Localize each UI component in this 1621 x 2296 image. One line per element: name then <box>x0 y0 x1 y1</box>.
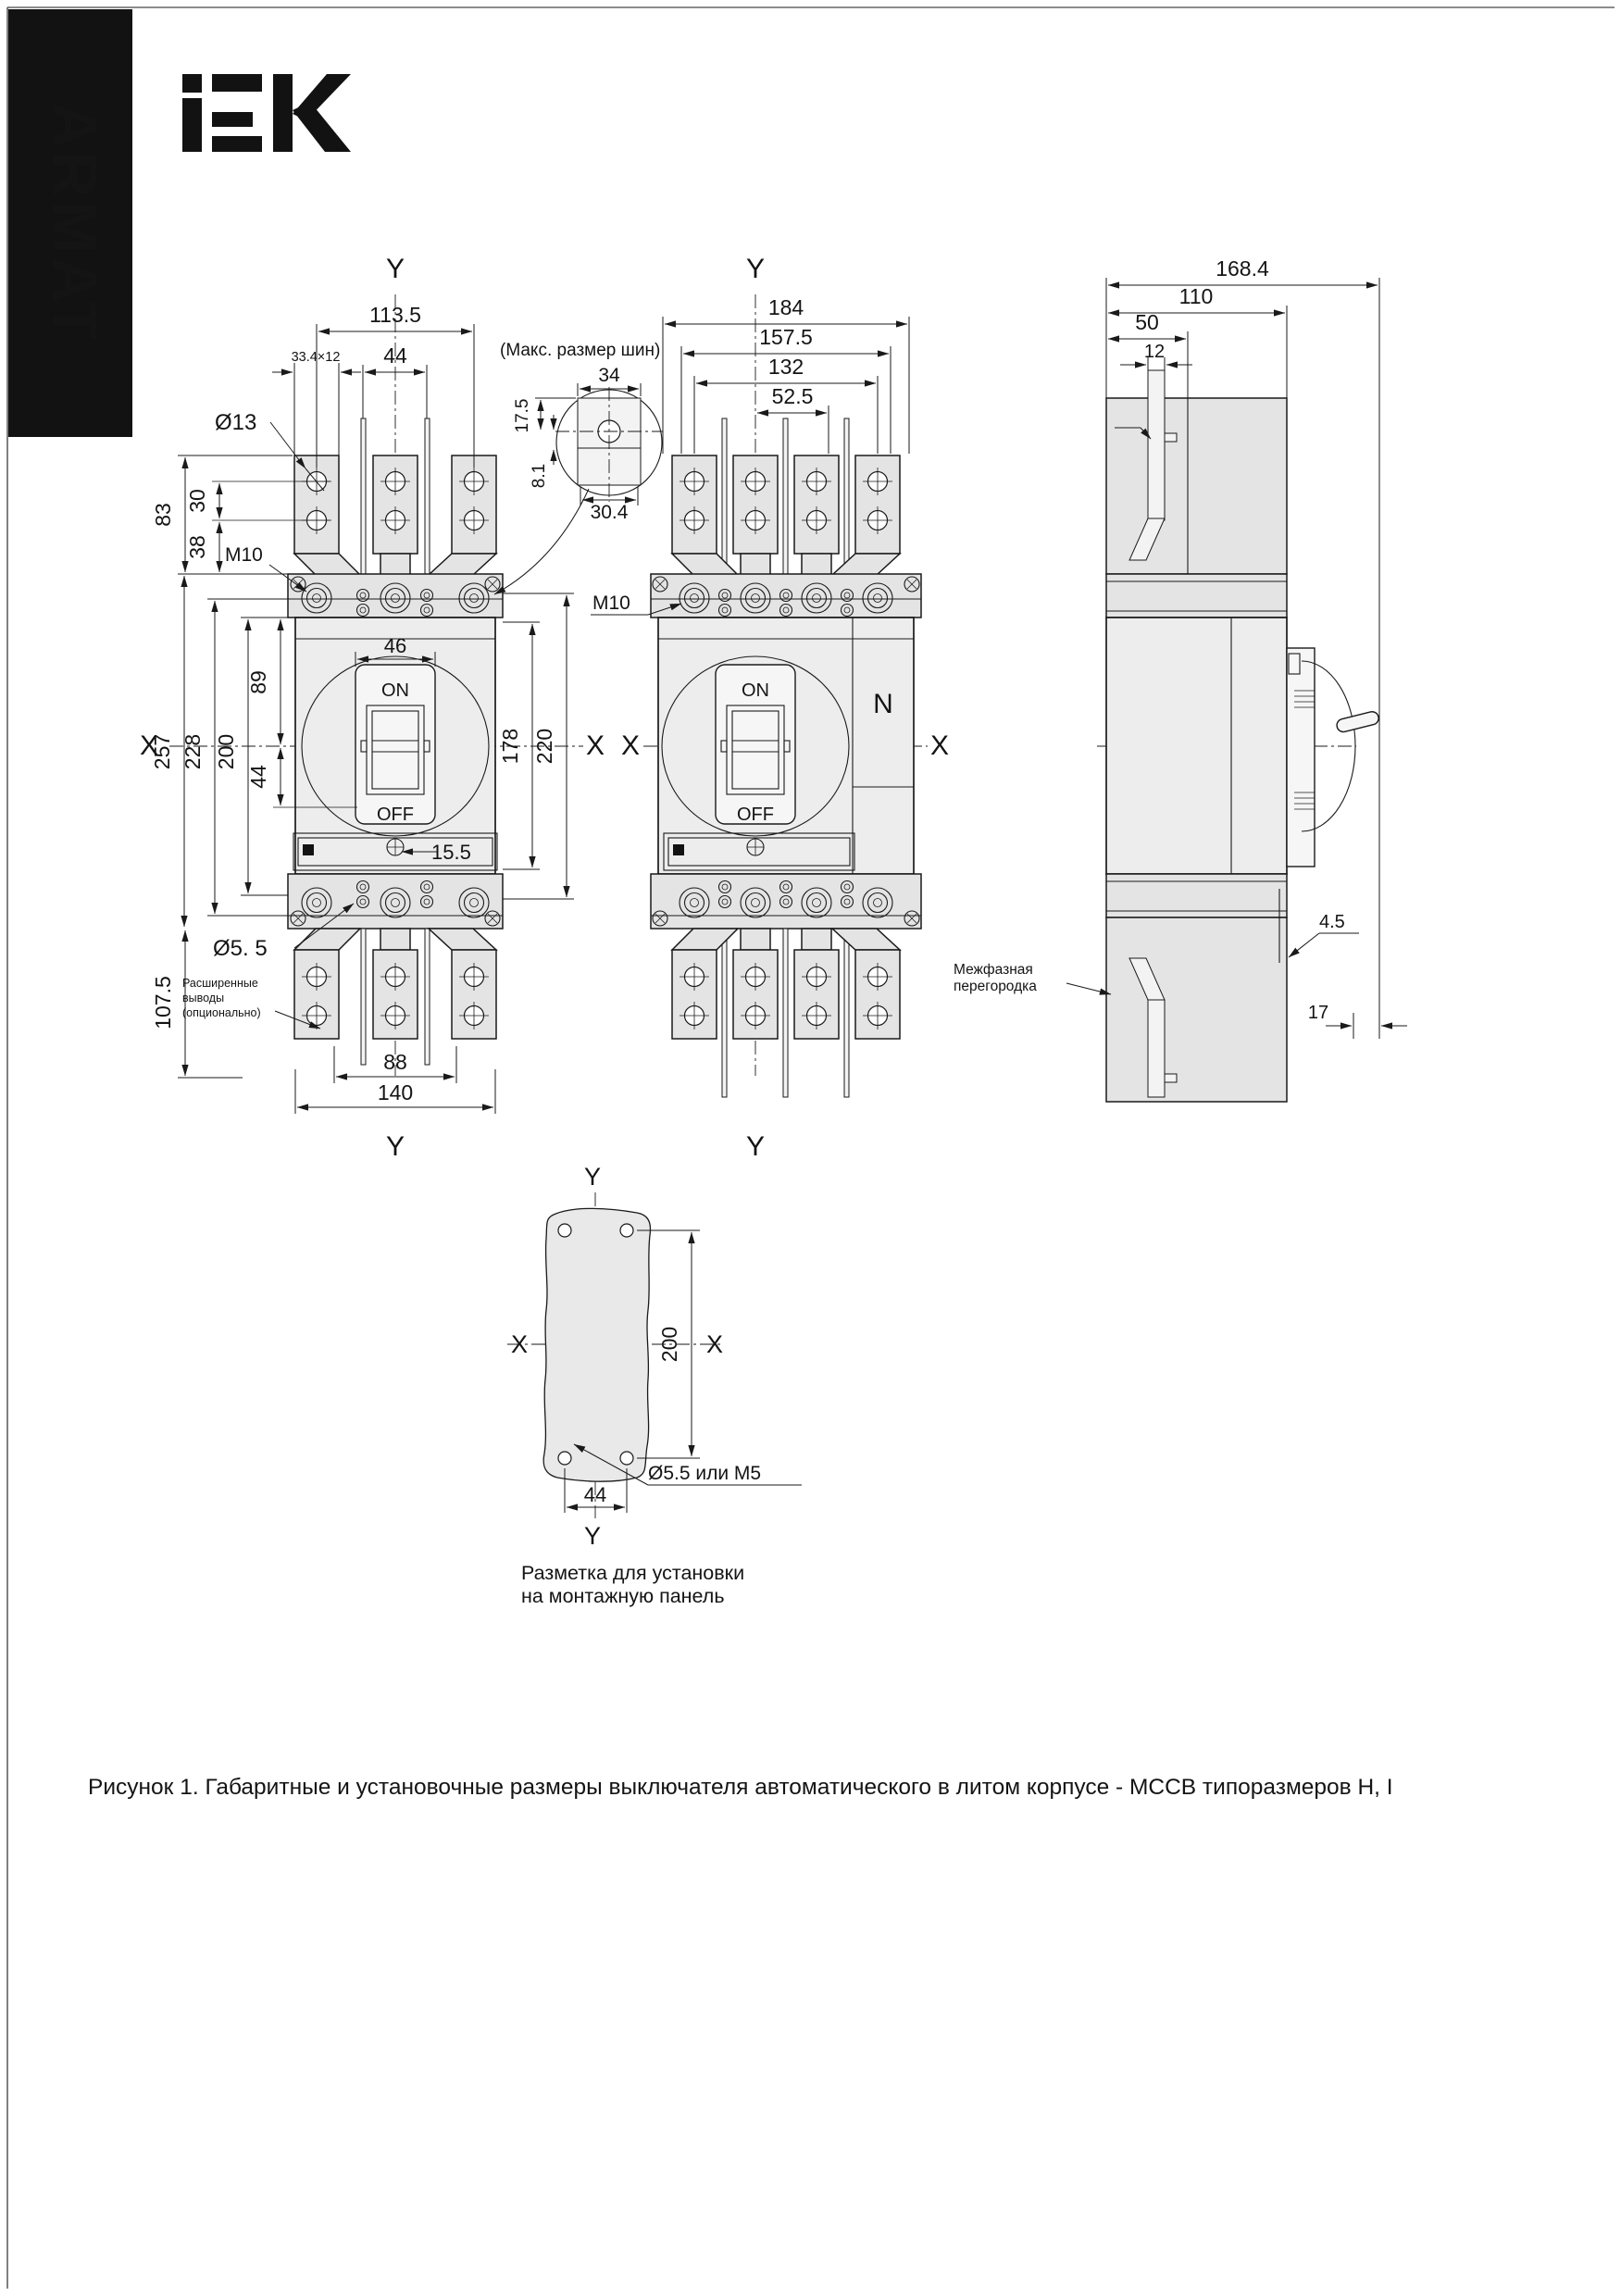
v1-dim-hole-span: 30 <box>185 489 209 513</box>
v1-dim-mount-height: 200 <box>214 734 238 769</box>
v1-axis-x-right: X <box>586 730 605 761</box>
busbar-detail: (Макс. размер шин) 34 17.5 8.1 30.4 <box>494 341 663 594</box>
v1-dim-body-height: 228 <box>181 734 205 769</box>
v1-dim-cover-height: 220 <box>532 729 556 764</box>
side-dim-body: 110 <box>1179 284 1214 308</box>
v2-axis-x-right: X <box>930 730 949 761</box>
panel-dim-height: 200 <box>657 1327 681 1362</box>
v1-axis-y-bottom: Y <box>386 1131 405 1162</box>
bus-dim-top: 17.5 <box>513 399 532 433</box>
side-dim-gap: 4.5 <box>1319 912 1345 932</box>
panel-axis-x-right: X <box>706 1330 723 1358</box>
v2-dim-w2: 157.5 <box>759 325 813 349</box>
drawing-canvas: ARMAT IEK <box>0 0 1621 2296</box>
v2-neutral-label: N <box>873 689 893 719</box>
v1-dim-bottom-span: 88 <box>383 1050 407 1074</box>
bus-note: (Макс. размер шин) <box>500 341 660 360</box>
v1-dim-window-offset: 15.5 <box>431 841 471 864</box>
v1-dim-lug-section: 33.4×12 <box>292 350 341 365</box>
front-view-3p: ON OFF Y 113.5 <box>140 254 605 1162</box>
v2-axis-y-bottom: Y <box>746 1131 765 1162</box>
panel-axis-y-top: Y <box>584 1163 601 1191</box>
v1-dim-pole-pitch: 44 <box>383 343 407 368</box>
v1-bottom-hole-label: Ø5. 5 <box>213 936 268 961</box>
figure-caption: Рисунок 1. Габаритные и установочные раз… <box>88 1775 1393 1800</box>
panel-outline <box>543 1208 650 1481</box>
v1-off-label: OFF <box>377 805 414 825</box>
bus-dim-slot: 30.4 <box>591 502 629 523</box>
v2-axis-y-top: Y <box>746 254 765 284</box>
v1-dim-lug-height: 83 <box>151 503 175 527</box>
iek-logo: IEK <box>182 74 351 152</box>
v2-dim-w1: 184 <box>768 295 804 319</box>
side-dim-bus: 12 <box>1144 342 1165 362</box>
panel-axis-y-bottom: Y <box>584 1522 601 1550</box>
v1-ext-note-line3: (опционально) <box>182 1006 261 1019</box>
side-dim-depth: 168.4 <box>1216 256 1269 281</box>
v1-dim-front-height: 178 <box>498 729 522 764</box>
v1-dim-upper: 89 <box>246 670 270 694</box>
v2-axis-x-left: X <box>621 730 640 761</box>
v2-on-label: ON <box>742 680 769 701</box>
v1-axis-y-top: Y <box>386 254 405 284</box>
banner-brand-text: ARMAT <box>40 103 110 343</box>
breaker-handle <box>1336 710 1380 733</box>
side-barrier-note-line2: перегородка <box>954 979 1037 994</box>
side-barrier-note-line1: Межфазная <box>954 962 1033 978</box>
panel-caption-line1: Разметка для установки <box>521 1562 744 1584</box>
v2-off-label: OFF <box>737 805 774 825</box>
armat-banner: ARMAT <box>8 9 132 437</box>
v2-dim-w3: 132 <box>768 355 804 379</box>
side-dim-handle: 17 <box>1308 1003 1328 1023</box>
v1-on-label: ON <box>381 680 409 701</box>
v1-dim-hole-plate: 38 <box>185 535 209 559</box>
bus-dim-offset: 8.1 <box>530 464 549 488</box>
panel-hole-label: Ø5.5 или M5 <box>648 1463 761 1484</box>
panel-dim-width: 44 <box>584 1483 606 1506</box>
v1-ext-note-line1: Расширенные <box>182 977 258 990</box>
v1-dim-total-height: 257 <box>150 734 174 769</box>
side-view: 168.4 110 50 12 4.5 17 Межфазная перегор… <box>954 256 1407 1102</box>
side-dim-terminal: 50 <box>1135 310 1159 334</box>
v1-dim-bottom-ext: 107.5 <box>151 976 175 1029</box>
panel-caption-line2: на монтажную панель <box>521 1585 725 1607</box>
v1-hole-dia-label: Ø13 <box>215 410 256 435</box>
v1-dim-lower: 44 <box>246 765 270 789</box>
front-view-4p: N ON OFF <box>591 254 949 1162</box>
v1-ext-note-line2: выводы <box>182 992 224 1004</box>
v2-dim-w4: 52.5 <box>772 384 814 408</box>
v1-dim-handle-width: 46 <box>384 634 406 657</box>
v1-thread-label: M10 <box>225 544 263 566</box>
v2-thread-label: M10 <box>592 593 630 614</box>
document-page: ARMAT IEK <box>0 0 1621 2296</box>
v1-dim-overall-width: 113.5 <box>369 303 421 327</box>
v1-dim-width: 140 <box>378 1080 413 1104</box>
mounting-panel-view: Y 200 X X Ø5.5 или M5 44 Y Разметка для … <box>507 1163 802 1607</box>
bus-dim-width: 34 <box>598 365 620 386</box>
panel-axis-x-left: X <box>511 1330 528 1358</box>
